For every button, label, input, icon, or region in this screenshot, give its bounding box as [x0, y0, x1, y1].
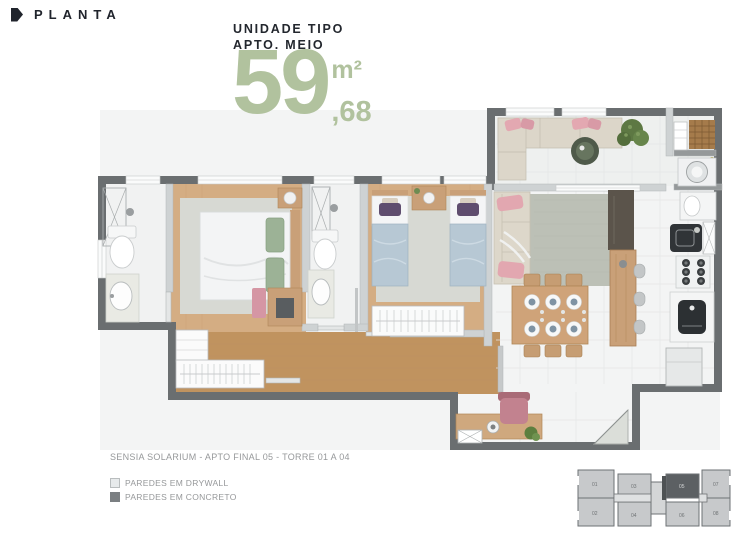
plan-caption: SENSIA SOLARIUM - APTO FINAL 05 - TORRE …	[110, 452, 350, 462]
legend: PAREDES EM DRYWALL PAREDES EM CONCRETO	[110, 478, 237, 502]
keyplan-label-06: 06	[679, 513, 685, 519]
sink-small-icon	[619, 260, 627, 268]
lamp-icon	[424, 193, 435, 204]
tv-icon	[276, 298, 294, 318]
plant-icon	[414, 188, 420, 194]
washing-machine	[678, 158, 716, 186]
stools	[634, 264, 645, 334]
concrete-swatch	[110, 492, 120, 502]
kitchen-sink	[670, 224, 702, 252]
drywall-swatch	[110, 478, 120, 488]
legend-item-concrete: PAREDES EM CONCRETO	[110, 492, 237, 502]
legend-label: PAREDES EM CONCRETO	[125, 492, 237, 502]
tv-panel	[608, 190, 634, 250]
planta-header: PLANTA	[11, 7, 122, 22]
keyplan-label-03: 03	[631, 484, 637, 490]
legend-label: PAREDES EM DRYWALL	[125, 478, 229, 488]
single-bed	[372, 190, 408, 286]
kitchen-island	[610, 250, 645, 346]
keyplan-label-02: 02	[592, 511, 598, 517]
shower-head-icon	[126, 208, 134, 216]
keyplan-label-05: 05	[679, 484, 685, 490]
arrow-icon	[11, 8, 23, 22]
page-title: PLANTA	[34, 7, 122, 22]
oven-counter	[670, 292, 714, 342]
area-decimal: ,68	[331, 98, 371, 127]
bench	[252, 288, 266, 318]
keyplan-label-04: 04	[631, 513, 637, 519]
laundry-tank	[680, 192, 716, 220]
single-bed	[450, 190, 486, 286]
keyplan-label-07: 07	[713, 482, 719, 488]
area-integer: 59	[232, 46, 328, 127]
unit-area: 59 m² ,68	[232, 46, 372, 127]
lamp-icon	[284, 192, 296, 204]
legend-item-drywall: PAREDES EM DRYWALL	[110, 478, 237, 488]
keyplan-label-08: 08	[713, 511, 719, 517]
office-chair	[498, 392, 530, 424]
cooktop	[676, 256, 710, 288]
planta-page: { "header": { "title": "PLANTA" }, "unit…	[0, 0, 736, 540]
key-plan: 01 03 05 07 02 04 06 08	[574, 462, 734, 538]
keyplan-label-01: 01	[592, 482, 598, 488]
fridge	[666, 348, 702, 386]
area-unit: m²	[331, 58, 371, 83]
